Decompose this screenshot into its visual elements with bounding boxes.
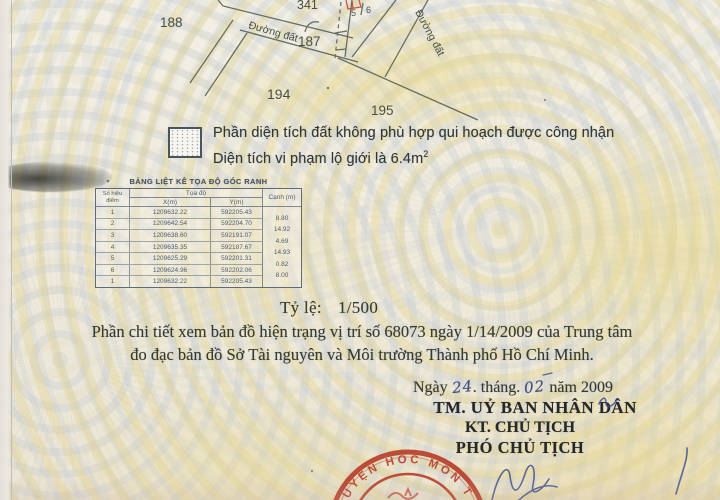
cell-cy: 592191.07 — [211, 230, 262, 241]
coordinate-table: Số hiệuđiểm Tọa độ X(m) Y(m) Cạnh (m) 11… — [95, 188, 302, 288]
col-header-coords: Tọa độ — [130, 189, 262, 198]
col-header-point: Số hiệuđiểm — [96, 189, 130, 206]
cell-cx: 1209638.60 — [130, 230, 211, 241]
cell-pt: 2 — [96, 219, 130, 230]
edge-value: 14.92 — [274, 226, 290, 233]
cell-cx: 1209642.54 — [130, 219, 211, 230]
edge-value: 8.00 — [276, 272, 289, 279]
cell-cx: 1209632.22 — [130, 207, 211, 218]
table-title: BẢNG LIỆT KÊ TỌA ĐỘ GÓC RANH — [95, 177, 302, 186]
col-header-x: X(m) — [130, 198, 211, 206]
parcel-label-187: 187 — [298, 34, 321, 49]
col-header-coords-group: Tọa độ X(m) Y(m) — [130, 189, 263, 206]
land-document-photo: 188 341 187 194 195 5 6 Đường đất Đường … — [0, 0, 720, 500]
signature-line-committee: TM. UỶ BAN NHÂN DÂN — [415, 398, 655, 418]
date-mid: . tháng. — [473, 379, 521, 396]
cell-pt: 1 — [96, 207, 130, 218]
cell-cy: 592205.43 — [211, 207, 262, 218]
parcel-label-5: 5 — [351, 8, 356, 18]
stamp-arc-text: UYỆN HÓC MÔN T — [341, 453, 475, 500]
date-suffix: năm 2009 — [549, 379, 613, 396]
date-prefix: Ngày — [413, 379, 448, 396]
legend: Phần diện tích đất không phù hợp qui hoạ… — [168, 123, 614, 170]
road-label-2: Đường đất — [412, 8, 446, 58]
parcel-label-194: 194 — [267, 86, 291, 102]
table-row: 61209624.96592202.06 — [96, 265, 262, 277]
cell-pt: 3 — [96, 230, 130, 241]
cell-pt: 6 — [96, 265, 130, 276]
cell-cx: 1209635.35 — [130, 242, 211, 253]
hatched-area-swatch — [168, 127, 202, 158]
cell-pt: 4 — [96, 242, 130, 253]
note-line-2: đo đạc bản đồ Sở Tài nguyên và Môi trườn… — [52, 344, 672, 367]
edge-value: 8.80 — [276, 215, 289, 222]
scale-line: Tỷ lệ:1/500 — [280, 298, 378, 318]
note-paragraph: Phần chi tiết xem bản đồ hiện trạng vị t… — [52, 321, 672, 367]
parcel-label-341: 341 — [297, 0, 318, 12]
photo-bottom-shade — [0, 478, 720, 500]
cell-cy: 592202.06 — [211, 265, 262, 276]
legend-line-2: Diện tích vi phạm lộ giới là 6.4m2 — [213, 144, 614, 170]
legend-line-1: Phần diện tích đất không phù hợp qui hoạ… — [213, 123, 614, 144]
subject-parcel-red-outline — [346, 0, 361, 9]
cell-cx: 1209632.22 — [130, 276, 211, 287]
table-row: 11209632.22592205.43 — [96, 207, 262, 219]
cell-cy: 592204.70 — [211, 219, 262, 230]
table-header: Số hiệuđiểm Tọa độ X(m) Y(m) Cạnh (m) — [96, 189, 301, 207]
handwritten-month: 02 — [523, 377, 546, 397]
svg-text:UYỆN HÓC MÔN T: UYỆN HÓC MÔN T — [341, 453, 475, 500]
map-lines — [190, 0, 478, 120]
handwritten-day: 24 — [451, 377, 474, 397]
edge-value: 0.82 — [276, 261, 289, 268]
cell-pt: 5 — [96, 253, 130, 264]
official-red-stamp: UYỆN HÓC MÔN T — [330, 452, 486, 500]
legend-text: Phần diện tích đất không phù hợp qui hoạ… — [213, 123, 614, 170]
table-row: 11209632.22592205.43 — [96, 276, 262, 287]
edge-value: 4.69 — [276, 238, 289, 245]
cell-cy: 592205.43 — [211, 276, 262, 287]
parcel-label-188: 188 — [160, 15, 183, 30]
coord-rows: 11209632.22592205.4321209642.54592204.70… — [96, 207, 263, 287]
map-parcel-labels: 188 341 187 194 195 5 6 Đường đất Đường … — [160, 0, 447, 118]
cell-cx: 1209624.96 — [130, 265, 211, 276]
road-label-1: Đường đất — [247, 19, 299, 45]
table-row: 31209638.60592191.07 — [96, 230, 262, 242]
table-row: 21209642.54592204.70 — [96, 219, 262, 231]
signature-line-vice-chairman: PHÓ CHỦ TỊCH — [400, 438, 640, 458]
col-header-edge: Cạnh (m) — [263, 189, 301, 206]
note-line-1: Phần chi tiết xem bản đồ hiện trạng vị t… — [52, 321, 672, 344]
edge-values: 8.8014.924.6914.930.828.00 — [263, 207, 301, 287]
scale-label: Tỷ lệ: — [280, 298, 322, 317]
scale-value: 1/500 — [338, 298, 378, 317]
cell-cx: 1209625.29 — [130, 253, 211, 264]
table-row: 51209625.29592201.31 — [96, 253, 262, 265]
cell-cy: 592201.31 — [211, 253, 262, 264]
edge-value: 14.93 — [274, 249, 290, 256]
parcel-label-6: 6 — [366, 5, 371, 15]
cell-cy: 592187.67 — [211, 242, 262, 253]
cell-pt: 1 — [96, 276, 130, 287]
stamp-emblem-hint — [388, 489, 418, 499]
parcel-label-195: 195 — [371, 103, 394, 118]
photo-left-edge — [0, 0, 12, 500]
col-header-y: Y(m) — [211, 198, 262, 206]
signature-line-chairman: KT. CHỦ TỊCH — [400, 419, 640, 437]
date-line: Ngày 24. tháng. 02 năm 2009 — [413, 378, 613, 397]
table-row: 41209635.35592187.67 — [96, 242, 262, 254]
